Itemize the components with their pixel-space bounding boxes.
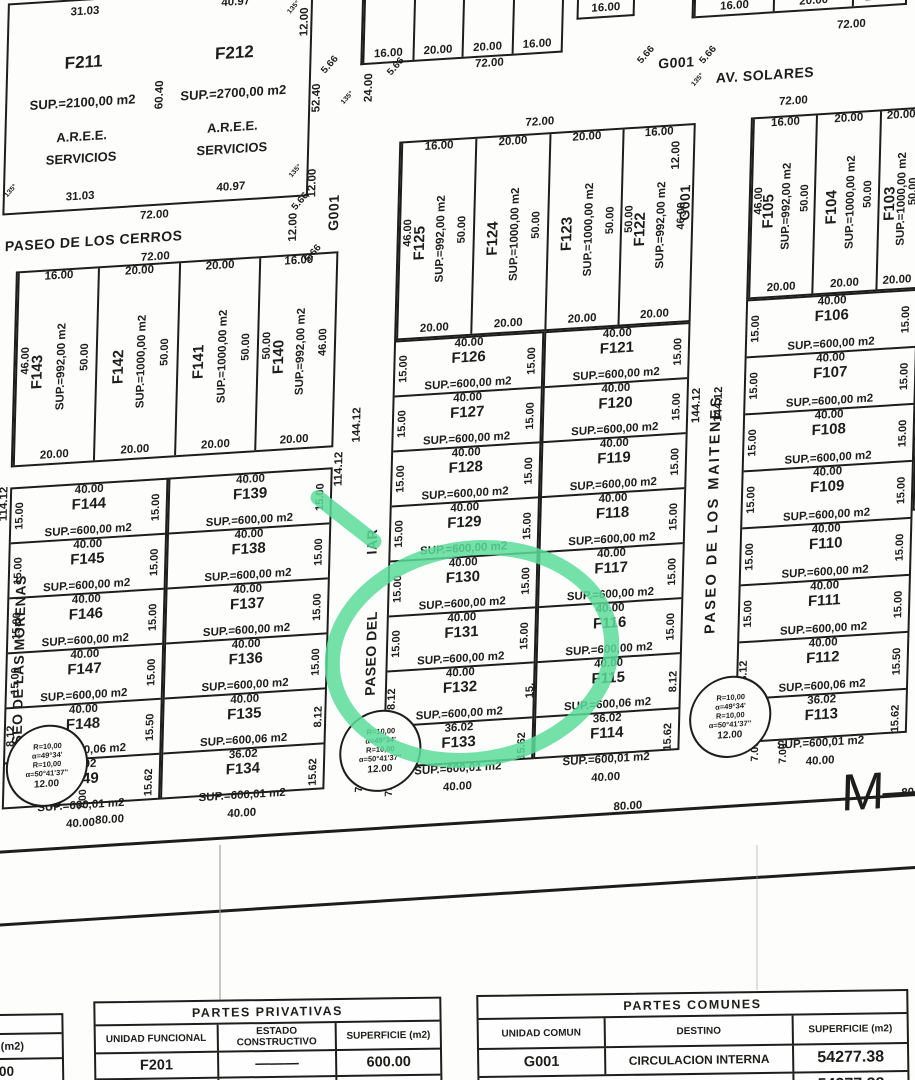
- lot-area: SUP.=1000,00 m2: [582, 182, 596, 276]
- lot-side-dim: 15.50: [145, 713, 157, 741]
- lot-side-dim: 15.00: [744, 542, 756, 570]
- lot-row: 40.00 F109 SUP.=600,00 m2 15.00 15.00: [742, 460, 912, 528]
- lot-id: F145: [70, 551, 105, 568]
- dim-label: 60.40: [154, 80, 166, 110]
- lot-id: F212: [215, 42, 254, 64]
- lot-side-dim: 15.00: [14, 501, 26, 529]
- dim-label: 72.00: [475, 57, 504, 70]
- lot: 16.00 F105 SUP.=992,00 m2 50.00 46.00 20…: [748, 115, 816, 297]
- table-cell: 00.00: [0, 1057, 62, 1080]
- block-b-deep-lots: 16.00 F143 SUP.=992,00 m2 50.00 46.00 20…: [11, 251, 339, 467]
- dim-label: 72.00: [779, 95, 808, 108]
- lot-side-dim: 8.12: [668, 670, 680, 692]
- lot-use: A.R.E.E.: [56, 127, 107, 145]
- lot: 20.00 F103 SUP.=1000,00 m2 50.00 20.00: [875, 109, 915, 290]
- lot-side-dim: 15.00: [669, 502, 681, 530]
- lot-id: F134: [226, 760, 261, 777]
- lot-id: F121: [600, 340, 635, 357]
- dim-label: 52.40: [311, 83, 323, 113]
- lot-id: F108: [811, 421, 846, 438]
- dim-label: 72.00: [140, 209, 169, 222]
- lot-id: F126: [451, 349, 486, 366]
- lot-bottom-dim: 40.00: [591, 771, 620, 784]
- lot-row: 40.00 F145 SUP.=600,00 m2 15.00 15.00: [9, 533, 165, 598]
- lot-row: 40.00 F108 SUP.=600,00 m2 15.00 15.00: [744, 403, 914, 471]
- lot-front-dim: 20.00: [887, 109, 915, 122]
- lot-row: 40.00 F111 SUP.=600,00 m2 15.00 15.00: [739, 574, 909, 642]
- angle-mark: 135°: [340, 90, 355, 106]
- lot: 16.00 F125 SUP.=992,00 m2 50.00 46.00 20…: [396, 139, 475, 339]
- lot: 20.00 F141 SUP.=1000,00 m2 50.00 20.00: [174, 258, 260, 455]
- cut-lot: 20.00: [852, 0, 906, 6]
- lot-side-dim: 15.00: [147, 658, 159, 686]
- dim-label: 12.00: [299, 7, 311, 37]
- lot-id: F147: [67, 661, 102, 678]
- dim-label: 12.00: [671, 140, 683, 170]
- dim-label: 72.00: [837, 19, 866, 32]
- lot-id: F112: [806, 649, 840, 666]
- lot-id: F120: [598, 395, 633, 412]
- chamfer-dim: 5.66: [698, 45, 719, 67]
- scan-crease: [756, 845, 758, 990]
- boundary-line: [0, 863, 915, 931]
- lot-row: 40.00 F135 SUP.=600,06 m2 8.12: [163, 687, 325, 752]
- lot-front-dim: 20.00: [799, 0, 828, 8]
- table-cell: ———: [217, 1051, 336, 1077]
- lot-front-dim: 16.00: [645, 126, 674, 139]
- lot-bottom-dim: 31.03: [66, 190, 95, 203]
- lot-bottom-dim: 40.00: [66, 817, 95, 830]
- column-header: SUPERFICIE (m2): [335, 1022, 440, 1049]
- lot-side-dim: 15.00: [898, 419, 910, 447]
- common-unit-label: G001: [325, 194, 342, 231]
- lot-front-dim: 20.00: [473, 41, 502, 54]
- lot-bottom-dim: 40.97: [216, 181, 245, 194]
- lot-id: F128: [448, 459, 483, 476]
- lot-id: F119: [597, 450, 631, 467]
- service-lot: 31.03 F211 SUP.=2100,00 m2 A.R.E.E. SERV…: [4, 0, 160, 213]
- lot-use: A.R.E.E.: [207, 118, 258, 136]
- table-cell: 600.00: [336, 1076, 441, 1080]
- lot-front-dim: 20.00: [572, 131, 601, 144]
- lot-side-dim: 15.00: [895, 533, 907, 561]
- column-header: UNIDAD COMUN: [479, 1018, 604, 1048]
- table-header-fragment: [0, 1015, 62, 1034]
- lot-bottom-dim: 40.00: [805, 755, 834, 768]
- lot-depth-dim: 50.00: [623, 205, 636, 233]
- lot: 20.00 F123 SUP.=1000,00 m2 50.00 20.00: [544, 130, 623, 330]
- lot-id: F109: [810, 478, 845, 495]
- lot-row: 40.00 F127 SUP.=600,00 m2 15.00 15.00: [393, 386, 541, 450]
- lot-front-dim: 16.00: [44, 270, 73, 283]
- lot-side-dim: 15.00: [666, 612, 678, 640]
- cut-lot: F 20.00: [462, 0, 514, 57]
- table-body: F201 ——— 600.00 F202 ——— 600.00: [96, 1050, 441, 1080]
- cut-lot: F22 SU 16.00: [362, 0, 414, 63]
- lot-area: SUP.=2100,00 m2: [29, 91, 135, 113]
- lot-depth-dim: 50.00: [158, 338, 171, 366]
- lot-id: F110: [809, 535, 843, 552]
- lot-id: F136: [228, 650, 263, 667]
- lot-id: F139: [233, 485, 268, 502]
- lot-id: F144: [71, 496, 106, 513]
- roundabout-width: 12.00: [34, 777, 59, 791]
- table-partes-privativas: PARTES PRIVATIVAS UNIDAD FUNCIONAL ESTAD…: [93, 997, 442, 1080]
- lot-side-dim: 15.00: [900, 362, 912, 390]
- lot-side-dim: 15.00: [524, 456, 536, 484]
- top-cut-lots-east: 16.00 20.00 20.00: [692, 0, 909, 18]
- lot-id: F124: [484, 221, 502, 256]
- lot-id: F129: [447, 514, 482, 531]
- dim-label: 144.12: [691, 388, 703, 424]
- lot-area: SUP.=1000,00 m2: [843, 155, 857, 249]
- column-header: UNIDAD FUNCIONAL: [96, 1025, 217, 1053]
- lot-bottom-dim: 20.00: [280, 433, 309, 446]
- lot-side-dim: 15.62: [663, 722, 675, 750]
- table-cell: G001: [479, 1048, 604, 1076]
- lot-row: 40.00 F118 SUP.=600,00 m2 15.00: [541, 487, 685, 551]
- table-cell: 54277.38: [792, 1044, 907, 1072]
- lot-area: SUP.=1000,00 m2: [135, 314, 149, 408]
- lot-bottom-dim: 20.00: [40, 448, 69, 461]
- lot-side-dim: 15.00: [747, 428, 759, 456]
- east-deep-lots: 16.00 F105 SUP.=992,00 m2 50.00 46.00 20…: [746, 107, 915, 300]
- dim-label: 7.00: [78, 789, 89, 810]
- table-partial: FICIE (m2) 00.00 92.00: [0, 1013, 65, 1080]
- lot-side-dim: 15.00: [151, 493, 163, 521]
- lot-front-dim: 16.00: [720, 0, 749, 13]
- lot-side-dim: 15.00: [673, 337, 685, 365]
- dim-label: 114.12: [0, 486, 11, 521]
- lot-area: SUP.=992,00 m2: [654, 181, 668, 269]
- lot-id: F142: [109, 349, 127, 384]
- east-column: 40.00 F106 SUP.=600,00 m2 15.00 15.00 40…: [735, 289, 915, 744]
- lot-bottom-dim: 20.00: [830, 277, 859, 290]
- lot-depth-dim: 46.00: [402, 218, 415, 246]
- lot-front-dim: 20.00: [865, 0, 894, 4]
- section-label: M—: [840, 758, 915, 824]
- lot-bottom-dim: 20.00: [120, 443, 149, 456]
- lot-id: F107: [813, 364, 848, 381]
- lot-side-dim: 15.00: [667, 557, 679, 585]
- lot-depth-dim: 50.00: [799, 184, 812, 212]
- lot: 16.00 F143 SUP.=992,00 m2 50.00 46.00 20…: [13, 268, 99, 465]
- lot-side-dim: 15.00: [894, 590, 906, 618]
- lot-id: F118: [596, 505, 630, 522]
- lot-side-dim: 15.00: [743, 599, 755, 627]
- lot-bottom-dim: 20.00: [420, 322, 449, 335]
- lot-area: SUP.=600,01 m2: [562, 751, 650, 768]
- lot-front-dim: 20.00: [125, 265, 154, 278]
- lot-use: SERVICIOS: [196, 139, 267, 158]
- dim-label: 12.00: [288, 212, 300, 242]
- table-cell: 54277.38: [792, 1072, 907, 1080]
- lot-bottom-dim: 40.00: [443, 781, 472, 794]
- lot-id: F117: [594, 560, 628, 577]
- lot-front-dim: 16.00: [424, 140, 453, 153]
- lot-id: F135: [227, 705, 262, 722]
- lot-id: F141: [190, 344, 208, 379]
- lot-area: SUP.=1000,00 m2: [508, 187, 522, 281]
- cut-lot: 20.00: [773, 0, 854, 11]
- column-header: DESTINO: [603, 1016, 792, 1047]
- lot-depth-dim: 50.00: [78, 343, 91, 371]
- lot-bottom-dim: 20.00: [494, 317, 523, 330]
- table-header-fragment: FICIE (m2): [0, 1032, 62, 1059]
- dim-label: 24.00: [364, 73, 376, 103]
- lot-row: 40.00 F144 SUP.=600,00 m2 15.00 15.00: [11, 480, 167, 543]
- lot-side-dim: 15.00: [897, 476, 909, 504]
- lot-row: 40.00 F137 SUP.=600,00 m2 15.00: [166, 577, 328, 642]
- street-name-maitenes: PASEO DE LOS MAITENES: [702, 394, 724, 634]
- lot-row: 40.00 F120 SUP.=600,00 m2 15.00: [543, 377, 687, 441]
- lot-side-dim: 15.50: [892, 647, 904, 675]
- dim-label: 144.12: [352, 407, 364, 443]
- common-unit-label: G001: [676, 184, 693, 221]
- lot-side-dim: 8.12: [313, 705, 325, 727]
- lot-row: 36.02 F134 SUP.=600,01 m2 15.62 40.00: [162, 742, 324, 807]
- column-header: SUPERFICIE (m2): [792, 1014, 907, 1044]
- dim-label: 12.00: [307, 168, 319, 198]
- dim-label: 80.00: [95, 814, 124, 827]
- lot-side-dim: 15.00: [746, 485, 758, 513]
- lot-side-dim: 15.00: [312, 592, 324, 620]
- lot-side-dim: 15.00: [523, 511, 535, 539]
- dim-label: 114.12: [334, 451, 346, 486]
- common-unit-label: G001: [658, 53, 695, 71]
- lot-depth-dim: 46.00: [19, 347, 32, 375]
- lot-side-dim: 15.00: [394, 519, 406, 547]
- lot-bottom-dim: 20.00: [640, 308, 669, 321]
- lot-bottom-dim: 40.00: [227, 807, 256, 820]
- top-cut-lots-center: F22 SU 16.00 F2 S 20.00 F 20.00: [360, 0, 565, 65]
- dim-label: 144.12: [713, 386, 725, 422]
- lot: 16.00 F140 SUP.=992,00 m2 46.00 50.00 20…: [254, 253, 336, 450]
- lot-front-dim: 20.00: [423, 44, 452, 57]
- lot-side-dim: 15.00: [750, 314, 762, 342]
- lot-side-dim: 15.00: [311, 647, 323, 675]
- lot-area: SUP.=600,01 m2: [198, 787, 286, 804]
- roundabout-width: 12.00: [717, 729, 742, 743]
- lot-side-dim: 15.62: [891, 704, 903, 732]
- lot-row: 40.00 F121 SUP.=600,00 m2 15.00: [545, 324, 689, 386]
- table-partes-comunes: PARTES COMUNES UNIDAD COMUN DESTINO SUPE…: [476, 989, 909, 1080]
- lot-side-dim: 15.00: [397, 409, 409, 437]
- chamfer-dim: 5.66: [636, 44, 657, 66]
- lot-id: F138: [231, 540, 266, 557]
- lot-row: 40.00 F110 SUP.=600,00 m2 15.00 15.00: [741, 517, 911, 585]
- lot-front-dim: 20.00: [206, 260, 235, 273]
- lot-side-dim: 15.62: [144, 768, 156, 796]
- lot-row: 40.00 F136 SUP.=600,00 m2 15.00: [165, 632, 327, 697]
- lot-side-dim: 15.00: [749, 371, 761, 399]
- lot-side-dim: 15.00: [672, 392, 684, 420]
- dim-label: 7.00: [778, 743, 789, 764]
- lot-bottom-dim: 20.00: [882, 274, 911, 287]
- lot-row: 40.00 F107 SUP.=600,00 m2 15.00 15.00: [745, 346, 915, 414]
- lot-depth-dim: 50.00: [260, 332, 273, 360]
- lot-depth-dim: 50.00: [530, 210, 543, 238]
- lot-id: F146: [69, 606, 104, 623]
- lot-area: SUP.=992,00 m2: [434, 194, 448, 282]
- lot-side-dim: 15.62: [308, 757, 320, 785]
- lot-row: 40.00 F147 SUP.=600,00 m2 15.00 15.00: [6, 643, 162, 708]
- lot-row: 40.00 F146 SUP.=600,00 m2 15.00 15.00: [8, 588, 164, 653]
- lot-id: F127: [450, 404, 485, 421]
- scanned-subdivision-plan: 31.03 F211 SUP.=2100,00 m2 A.R.E.E. SERV…: [0, 0, 915, 1080]
- cut-lot: F2 S 20.00: [412, 0, 464, 60]
- lot-id: F114: [590, 725, 624, 742]
- lot-front-dim: 16.00: [523, 38, 552, 51]
- lot-row: 40.00 F138 SUP.=600,00 m2 15.00: [168, 522, 330, 587]
- top-cut-lot-lone: 16.00: [576, 0, 636, 20]
- lot-id: F123: [558, 217, 576, 252]
- lot-id: F137: [230, 595, 265, 612]
- lot-front-dim: 16.00: [771, 116, 800, 129]
- street-name-solares: AV. SOLARES: [716, 64, 815, 86]
- lot-area: SUP.=992,00 m2: [54, 323, 68, 411]
- angle-mark: 135°: [690, 72, 705, 88]
- lot: 20.00 F142 SUP.=1000,00 m2 50.00 20.00: [93, 263, 179, 460]
- lot-side-dim: 15.00: [670, 447, 682, 475]
- lot-row: 40.00 F119 SUP.=600,00 m2 15.00: [542, 432, 686, 496]
- lot-side-dim: 15.00: [150, 548, 162, 576]
- plan-layer: 31.03 F211 SUP.=2100,00 m2 A.R.E.E. SERV…: [0, 0, 915, 960]
- table-cell: CIRCULACION INTERNA: [604, 1046, 793, 1075]
- column-header: ESTADO CONSTRUCTIVO: [216, 1023, 335, 1051]
- lot-side-dim: 15.00: [398, 354, 410, 382]
- lot-area: SUP.=2700,00 m2: [180, 82, 286, 104]
- lot-id: F104: [823, 189, 841, 224]
- lot-side-dim: 15.00: [527, 346, 539, 374]
- table-cell: 600.00: [335, 1050, 440, 1075]
- lot-depth-dim: 50.00: [239, 333, 252, 361]
- lot-row: 40.00 F126 SUP.=600,00 m2 15.00 15.00: [395, 333, 543, 395]
- lot-area: SUP.=992,00 m2: [780, 162, 794, 250]
- lot-front-dim: 31.03: [70, 6, 99, 19]
- lot-id: F211: [64, 51, 102, 73]
- dim-label: 72.00: [525, 116, 554, 129]
- lot-area: SUP.=600,01 m2: [777, 735, 865, 752]
- lot-depth-dim: 50.00: [456, 215, 469, 243]
- lot-bottom-dim: 20.00: [201, 438, 230, 451]
- lot-front-dim: 16.00: [591, 1, 620, 14]
- lot-front-dim: 20.00: [834, 112, 863, 125]
- block-b-east-column: 40.00 F139 SUP.=600,00 m2 15.00 40.00 F1…: [160, 467, 333, 799]
- lot-id: F111: [808, 592, 841, 609]
- lot-id: F113: [804, 706, 838, 723]
- lot-id: F106: [814, 307, 849, 324]
- lot-side-dim: 15.00: [395, 464, 407, 492]
- lot-depth-dim: 50.00: [603, 206, 616, 234]
- lot-depth-dim: 46.00: [316, 328, 329, 356]
- dim-label: 72.00: [141, 251, 170, 264]
- lot-use: SERVICIOS: [46, 148, 117, 167]
- table-cell: F201: [96, 1053, 217, 1079]
- lot-side-dim: 15.00: [901, 305, 913, 333]
- cut-lot: 16.00: [694, 0, 775, 16]
- table-row: F201 ——— 600.00: [96, 1050, 440, 1079]
- lot-front-dim: 40.97: [221, 0, 250, 10]
- lot-bottom-dim: 20.00: [767, 281, 796, 294]
- lot-side-dim: 15.00: [314, 537, 326, 565]
- lot-row: 40.00 F128 SUP.=600,00 m2 15.00 15.00: [392, 441, 540, 505]
- lot-bottom-dim: 20.00: [568, 312, 597, 325]
- lot-row: 40.00 F112 SUP.=600,06 m2 8.12 15.50: [738, 631, 908, 699]
- cut-lot: 16.00: [511, 0, 563, 54]
- roundabout-angle: α=50°41'37'': [25, 767, 68, 779]
- lot-depth-dim: 50.00: [862, 180, 875, 208]
- lot-front-dim: 20.00: [498, 136, 527, 149]
- lot-side-dim: 15.00: [148, 603, 160, 631]
- lot-side-dim: 15.00: [525, 401, 537, 429]
- roundabout-width: 12.00: [367, 763, 392, 777]
- lot: 20.00 F104 SUP.=1000,00 m2 50.00 20.00: [812, 111, 880, 293]
- lot-depth-dim: 50.00: [907, 177, 915, 205]
- lot: 20.00 F124 SUP.=1000,00 m2 50.00 20.00: [470, 134, 549, 334]
- lot-area: SUP.=992,00 m2: [294, 308, 308, 396]
- lot-area: SUP.=1000,00 m2: [215, 309, 229, 403]
- roundabout-angle: α=50°41'37'': [709, 718, 752, 730]
- lot-depth-dim: 46.00: [752, 187, 765, 215]
- chamfer-dim: 5.66: [320, 54, 341, 76]
- center-deep-lots: 16.00 F125 SUP.=992,00 m2 50.00 46.00 20…: [394, 123, 696, 341]
